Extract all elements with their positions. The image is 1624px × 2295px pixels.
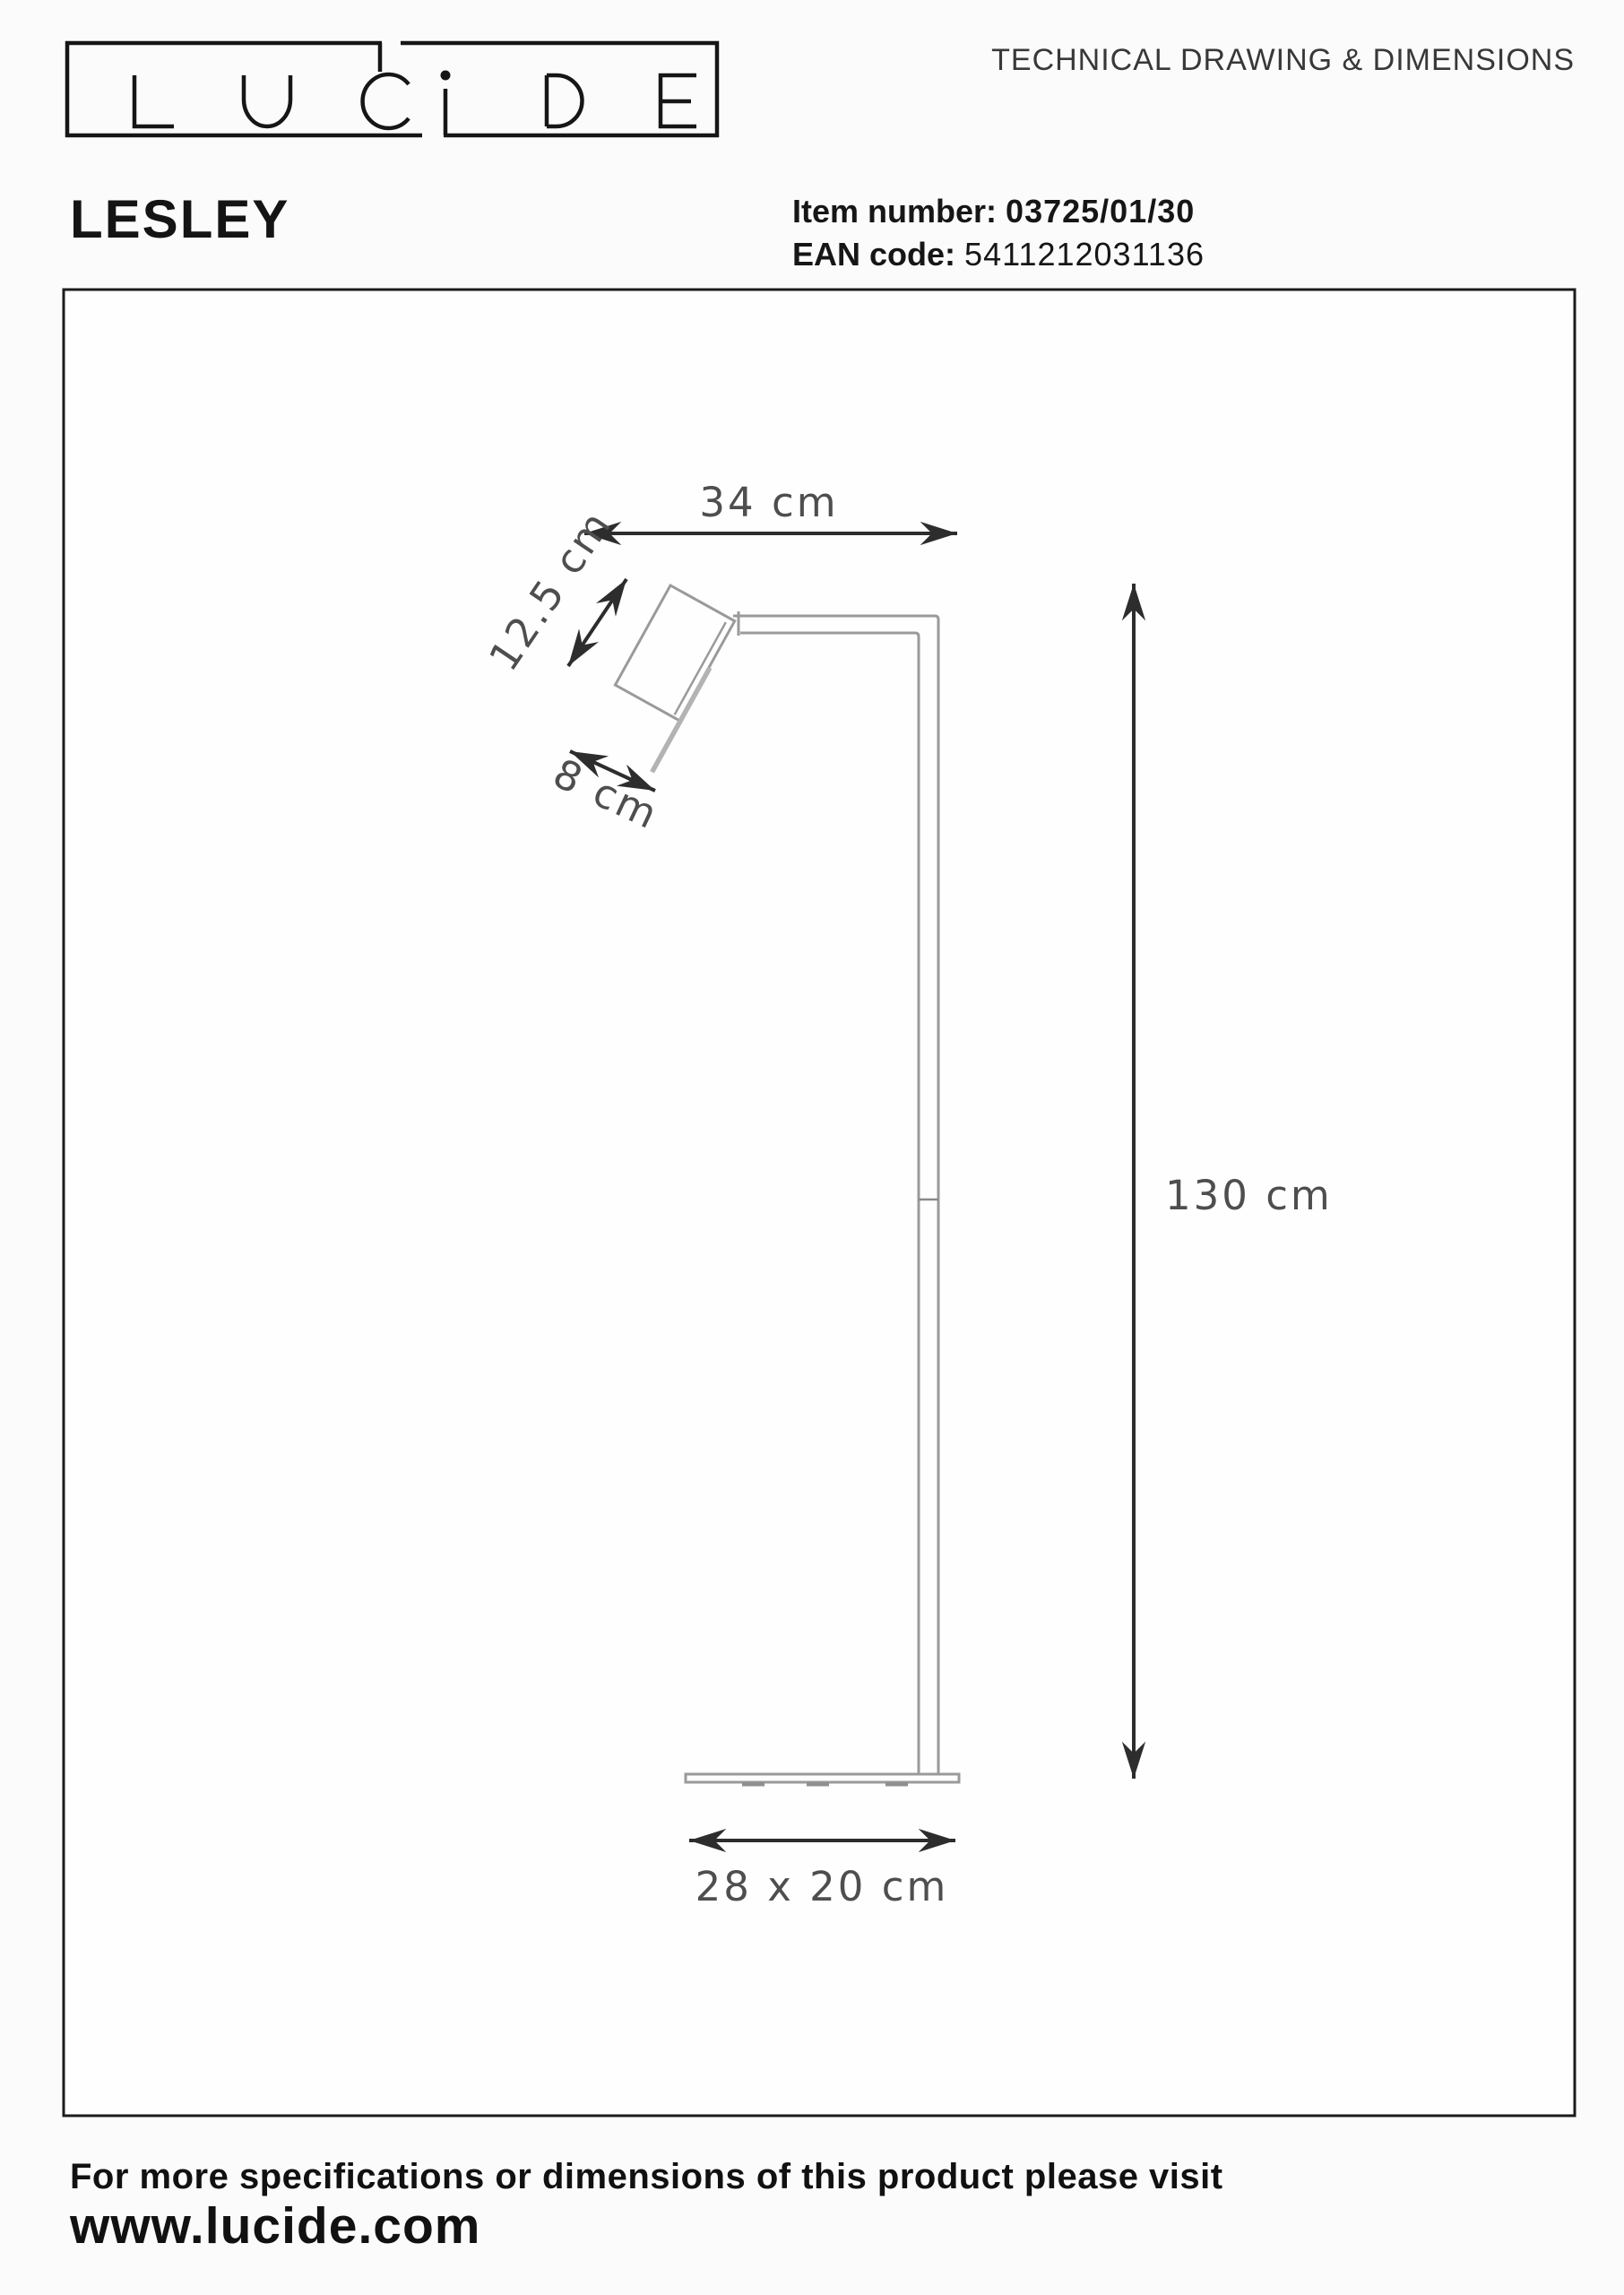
base-foot xyxy=(885,1782,908,1787)
base-foot xyxy=(742,1782,764,1787)
dim-label-base-size: 28 x 20 cm xyxy=(695,1863,949,1910)
dim-label-total-height: 130 cm xyxy=(1165,1172,1333,1219)
lamp-base xyxy=(686,1774,959,1782)
footer-note: For more specifications or dimensions of… xyxy=(70,2157,1223,2197)
base-foot xyxy=(807,1782,829,1787)
dim-label-arm-length: 34 cm xyxy=(699,479,838,526)
footer-website: www.lucide.com xyxy=(70,2196,480,2256)
technical-sheet-page: LUCIDE LUCIDE TECHNICAL DRAWING & DIMENS… xyxy=(0,0,1624,2295)
technical-drawing: 34 cm 12.5 cm 8 cm 130 cm 28 x 20 cm xyxy=(0,0,1624,2295)
